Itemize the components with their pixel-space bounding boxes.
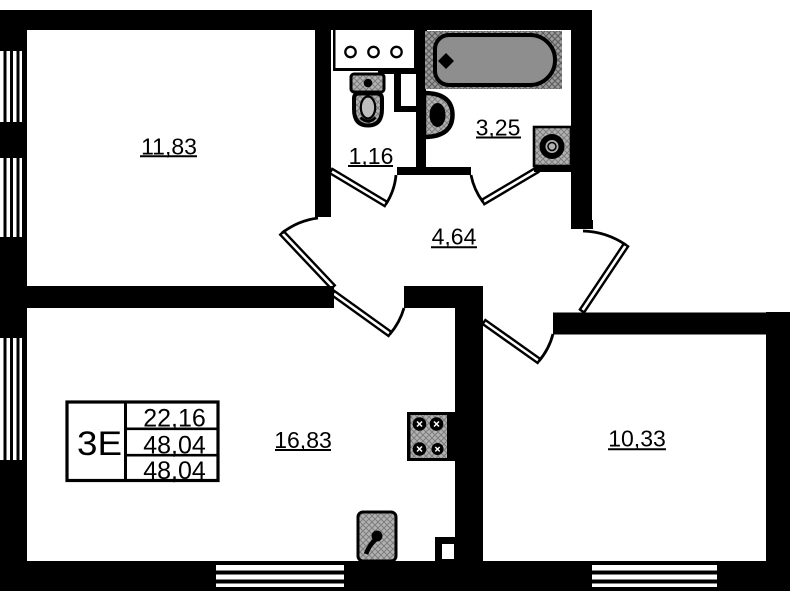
svg-text:22,16: 22,16 xyxy=(143,404,206,432)
svg-text:10,33: 10,33 xyxy=(608,426,666,452)
svg-text:48,04: 48,04 xyxy=(143,431,206,459)
svg-text:48,04: 48,04 xyxy=(143,457,206,485)
svg-text:4,64: 4,64 xyxy=(432,224,477,250)
svg-text:3Е: 3Е xyxy=(77,425,122,463)
